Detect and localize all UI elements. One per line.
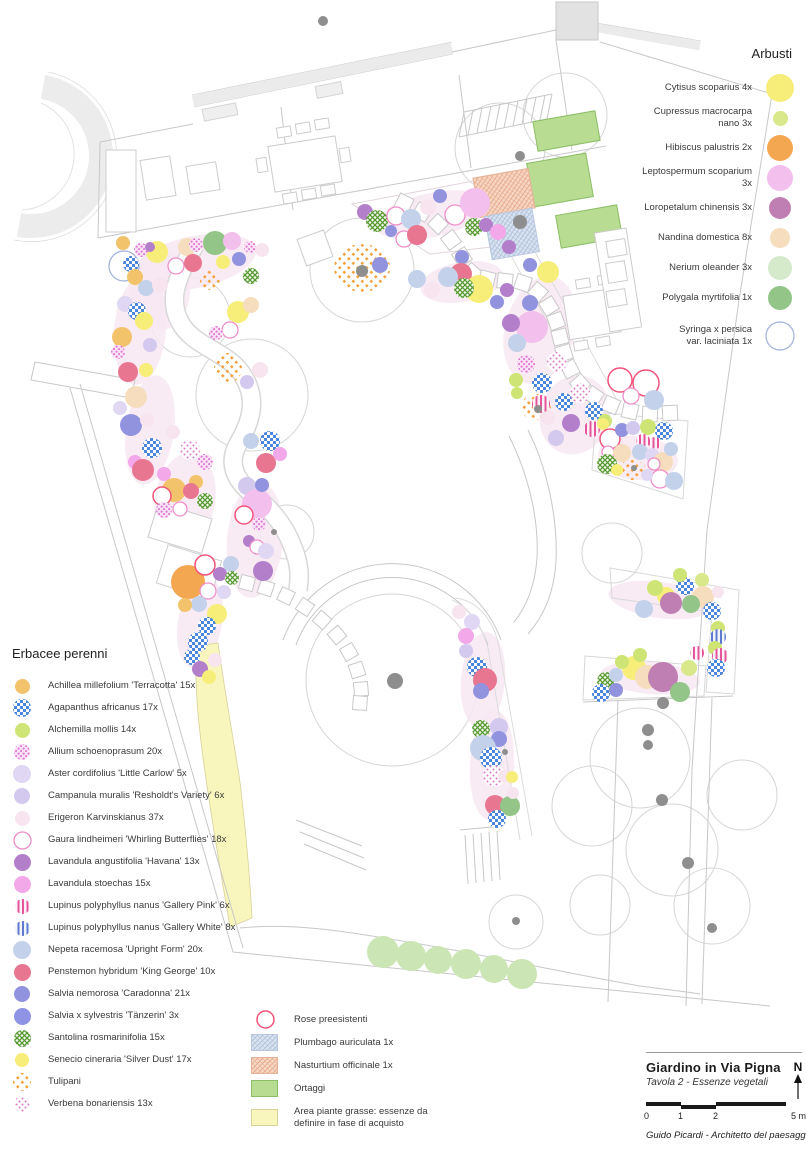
legend-item: Achillea millefolium 'Terracotta' 15x [8,675,260,697]
legend-item: Erigeron Karvinskianus 37x [8,807,260,829]
legend-item-label: Cupressus macrocarpa nano 3x [632,106,760,130]
legend-item: Leptospermum scoparium 3x [632,163,800,193]
legend-item: Agapanthus africanus 17x [8,697,260,719]
legend-item-label: Lavandula angustifolia 'Havana' 13x [48,856,200,868]
legend-item-label: Nasturtium officinale 1x [294,1060,393,1072]
legend-item: Loropetalum chinensis 3x [632,193,800,223]
lor-symbol-icon [767,195,793,221]
scale-segment [716,1102,786,1106]
legend-item: Area piante grasse: essenze dadefinire i… [250,1100,460,1136]
aga-symbol-icon [11,697,33,719]
drawing-subtitle: Tavola 2 - Essenze vegetali [646,1077,802,1088]
scale-bar: 0 1 2 5 m [646,1102,802,1124]
legend-item-label: Ortaggi [294,1083,325,1095]
legend-item: Salvia nemorosa 'Caradonna' 21x [8,983,260,1005]
legend-item-label: Lavandula stoechas 15x [48,878,150,890]
legend-item: Cupressus macrocarpa nano 3x [632,103,800,133]
north-arrow: N [792,1060,804,1105]
nep-symbol-icon [11,939,33,961]
legend-item: Gaura lindheimeri 'Whirling Butterflies'… [8,829,260,851]
legend-item: Plumbago auriculata 1x [250,1031,460,1054]
legend-item-label: Achillea millefolium 'Terracotta' 15x [48,680,195,692]
eri-symbol-icon [13,809,32,828]
ortA-symbol-icon [250,1079,280,1099]
legend-item: Allium schoenoprasum 20x [8,741,260,763]
legend-item-label: Lupinus polyphyllus nanus 'Gallery White… [48,922,235,934]
legend-item-label: Salvia nemorosa 'Caradonna' 21x [48,988,190,1000]
ast-symbol-icon [11,763,33,785]
legend-item: Nasturtium officinale 1x [250,1054,460,1077]
legend-item: Lupinus polyphyllus nanus 'Gallery White… [8,917,260,939]
lavS-symbol-icon [12,874,33,895]
san-symbol-icon [12,1028,33,1049]
legend-item-label: Erigeron Karvinskianus 37x [48,812,164,824]
legend-item: Lavandula angustifolia 'Havana' 13x [8,851,260,873]
lupW-symbol-icon [13,919,32,938]
salC-symbol-icon [12,984,32,1004]
drawing-title: Giardino in Via Pigna [646,1060,802,1075]
legend-item-label: Salvia x sylvestris 'Tänzerin' 3x [48,1010,179,1022]
legend-item-label: Allium schoenoprasum 20x [48,746,162,758]
legend-item-label: Plumbago auriculata 1x [294,1037,393,1049]
rose-symbol-icon [255,1009,276,1030]
legend-item-label: Aster cordifolius 'Little Carlow' 5x [48,768,187,780]
legend-item-label: Agapanthus africanus 17x [48,702,158,714]
scale-segment [681,1105,716,1109]
legend-item-label: Santolina rosmarinifolia 15x [48,1032,165,1044]
legend-item-label: Penstemon hybridum 'King George' 10x [48,966,215,978]
legend-perennials: Erbacee perenni Achillea millefolium 'Te… [8,646,260,1115]
legend-item: Cytisus scoparius 4x [632,73,800,103]
alc-symbol-icon [13,721,32,740]
cup-symbol-icon [771,109,790,128]
legend-item: Tulipani [8,1071,260,1093]
legend-item-label: Alchemilla mollis 14x [48,724,136,736]
tul-symbol-icon [11,1071,33,1093]
legend-item-label: Loropetalum chinensis 3x [632,202,760,214]
legend-areas: Rose preesistentiPlumbago auriculata 1xN… [250,1008,460,1136]
north-label: N [792,1060,804,1074]
legend-item: Hibiscus palustris 2x [632,133,800,163]
legend-item-label: Campanula muralis 'Resholdt's Variety' 6… [48,790,224,802]
scale-segment [646,1102,681,1106]
legend-item: Nerium oleander 3x [632,253,800,283]
nan-symbol-icon [768,226,792,250]
legend-item-label: Verbena bonariensis 13x [48,1098,153,1110]
legend-item: Polygala myrtifolia 1x [632,283,800,313]
author: Guido Picardi - Architetto del paesaggio [646,1130,802,1141]
syr-symbol-icon [764,320,796,352]
north-arrow-icon [792,1074,804,1100]
legend-item-label: Cytisus scoparius 4x [632,82,760,94]
legend-item: Campanula muralis 'Resholdt's Variety' 6… [8,785,260,807]
legend-item-label: Nerium oleander 3x [632,262,760,274]
lep-symbol-icon [765,163,795,193]
legend-item: Santolina rosmarinifolia 15x [8,1027,260,1049]
ver-symbol-icon [12,1094,32,1114]
legend-shrubs: Arbusti Cytisus scoparius 4xCupressus ma… [632,46,800,359]
legend-item-label: Polygala myrtifolia 1x [632,292,760,304]
legend-item-label: Syringa x persicavar. laciniata 1x [632,324,760,348]
legend-perennials-title: Erbacee perenni [8,646,260,661]
nastA-symbol-icon [250,1056,280,1076]
legend-item: Aster cordifolius 'Little Carlow' 5x [8,763,260,785]
all-symbol-icon [12,742,32,762]
lavH-symbol-icon [12,852,33,873]
grassA-symbol-icon [250,1108,280,1128]
legend-item: Alchemilla mollis 14x [8,719,260,741]
title-block-rule [646,1052,802,1053]
legend-item: Syringa x persicavar. laciniata 1x [632,313,800,359]
legend-shrubs-title: Arbusti [632,46,800,61]
legend-item-label: Hibiscus palustris 2x [632,142,760,154]
pen-symbol-icon [12,962,33,983]
legend-item-label: Area piante grasse: essenze dadefinire i… [294,1106,428,1130]
gau-symbol-icon [12,830,33,851]
legend-item-label: Rose preesistenti [294,1014,367,1026]
legend-item-label: Nepeta racemosa 'Upright Form' 20x [48,944,203,956]
legend-item: Ortaggi [250,1077,460,1100]
ach-symbol-icon [13,677,32,696]
legend-item: Lupinus polyphyllus nanus 'Gallery Pink'… [8,895,260,917]
pol-symbol-icon [766,284,794,312]
salT-symbol-icon [12,1006,33,1027]
legend-item: Verbena bonariensis 13x [8,1093,260,1115]
title-block: Giardino in Via Pigna Tavola 2 - Essenze… [646,1052,802,1141]
scale-tick: 1 [678,1111,683,1121]
legend-item: Penstemon hybridum 'King George' 10x [8,961,260,983]
legend-item: Salvia x sylvestris 'Tänzerin' 3x [8,1005,260,1027]
scale-tick: 2 [713,1111,718,1121]
legend-item: Senecio cineraria 'Silver Dust' 17x [8,1049,260,1071]
legend-item: Nandina domestica 8x [632,223,800,253]
ner-symbol-icon [766,254,794,282]
scale-tick: 5 m [791,1111,806,1121]
lupP-symbol-icon [13,897,32,916]
legend-item-label: Nandina domestica 8x [632,232,760,244]
legend-item-label: Lupinus polyphyllus nanus 'Gallery Pink'… [48,900,230,912]
legend-item-label: Leptospermum scoparium 3x [632,166,760,190]
legend-item: Nepeta racemosa 'Upright Form' 20x [8,939,260,961]
legend-item-label: Senecio cineraria 'Silver Dust' 17x [48,1054,192,1066]
plumA-symbol-icon [250,1033,280,1053]
legend-item-label: Gaura lindheimeri 'Whirling Butterflies'… [48,834,226,846]
cam-symbol-icon [12,786,32,806]
garden-plan-sheet: Arbusti Cytisus scoparius 4xCupressus ma… [0,0,806,1165]
legend-item: Rose preesistenti [250,1008,460,1031]
hib-symbol-icon [765,133,795,163]
legend-item-label: Tulipani [48,1076,81,1088]
scale-tick: 0 [644,1111,649,1121]
cyt-symbol-icon [764,72,796,104]
legend-item: Lavandula stoechas 15x [8,873,260,895]
sen-symbol-icon [13,1051,31,1069]
